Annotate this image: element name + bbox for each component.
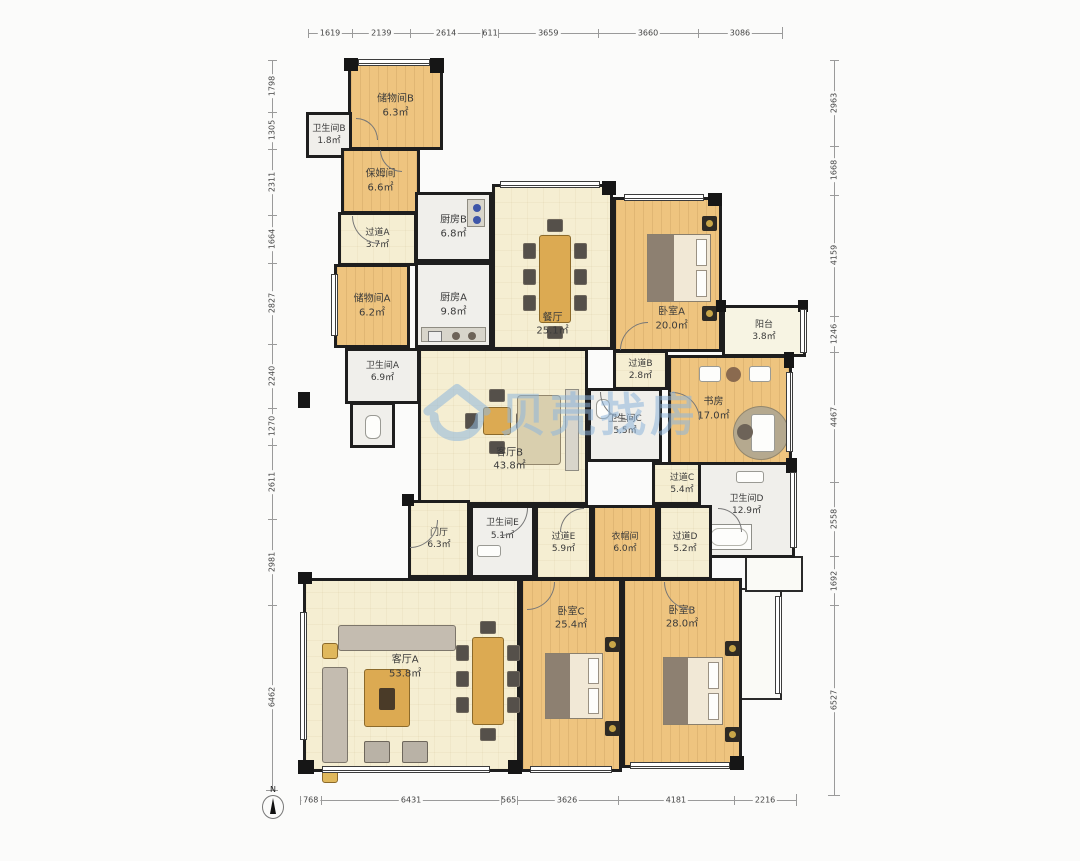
room-kitchen-b: 厨房B6.8㎡ bbox=[415, 192, 492, 262]
wall-pier bbox=[786, 458, 797, 473]
wall-pier bbox=[298, 760, 314, 774]
room-name: 过道E bbox=[552, 531, 576, 541]
wall-pier bbox=[402, 494, 414, 506]
room-name: 保姆间 bbox=[366, 169, 396, 180]
room-name: 卧室A bbox=[658, 307, 685, 318]
room-name: 卫生间A bbox=[366, 361, 399, 371]
wall-pier bbox=[298, 572, 312, 584]
room-name: 厨房B bbox=[440, 215, 467, 226]
nightstand bbox=[702, 306, 717, 321]
chair bbox=[480, 621, 496, 634]
window bbox=[624, 194, 704, 201]
room-cloakroom: 衣帽间6.0㎡ bbox=[592, 505, 658, 580]
bay-window-bath-d bbox=[745, 556, 803, 592]
room-area: 6.0㎡ bbox=[613, 544, 636, 554]
dimension-line-bottom: 768 6431 565 3626 4181 2216 bbox=[300, 794, 797, 806]
dim-value: 1305 bbox=[268, 118, 277, 142]
dim-value: 1692 bbox=[830, 568, 839, 592]
sofa bbox=[322, 667, 348, 763]
chair bbox=[456, 697, 469, 713]
wall-pier bbox=[430, 58, 444, 73]
shelf bbox=[699, 366, 721, 382]
room-bath-a: 卫生间A6.9㎡ bbox=[345, 348, 420, 404]
dim-value: 1246 bbox=[830, 321, 839, 345]
dim-value: 1619 bbox=[318, 29, 342, 38]
room-name: 过道C bbox=[670, 472, 694, 482]
room-area: 6.9㎡ bbox=[371, 373, 394, 383]
window bbox=[331, 274, 338, 336]
wall-pier bbox=[716, 300, 726, 312]
dim-value: 3626 bbox=[555, 796, 579, 805]
room-name: 卫生间D bbox=[730, 493, 764, 503]
shelf bbox=[749, 366, 771, 382]
wall-pier bbox=[708, 193, 722, 206]
sofa bbox=[338, 625, 456, 651]
room-bath-a-nook bbox=[350, 402, 395, 448]
dim-value: 565 bbox=[499, 796, 518, 805]
dim-value: 3659 bbox=[536, 29, 560, 38]
room-name: 衣帽间 bbox=[611, 531, 638, 541]
window bbox=[358, 59, 430, 66]
window bbox=[630, 762, 730, 769]
room-name: 卧室C bbox=[558, 606, 585, 617]
compass-arrow-icon bbox=[262, 795, 284, 819]
window bbox=[790, 472, 797, 548]
nightstand bbox=[725, 641, 740, 656]
room-bath-d: 卫生间D12.9㎡ bbox=[698, 462, 795, 558]
nightstand bbox=[605, 721, 620, 736]
dim-value: 3086 bbox=[728, 29, 752, 38]
north-label: N bbox=[260, 786, 286, 794]
room-living-b: 客厅B43.8㎡ bbox=[418, 348, 588, 505]
tea-table bbox=[483, 407, 511, 435]
room-area: 6.2㎡ bbox=[359, 307, 385, 318]
room-name: 餐厅 bbox=[542, 312, 562, 323]
chair bbox=[456, 671, 469, 687]
room-name: 客厅A bbox=[392, 655, 419, 666]
nightstand bbox=[702, 216, 717, 231]
stove-icon bbox=[467, 199, 485, 227]
room-area: 5.4㎡ bbox=[670, 485, 693, 495]
dim-value: 4181 bbox=[664, 796, 688, 805]
chair bbox=[489, 389, 505, 402]
chair bbox=[574, 243, 587, 259]
window bbox=[775, 596, 782, 694]
room-area: 53.8㎡ bbox=[389, 668, 421, 679]
room-area: 6.8㎡ bbox=[441, 228, 467, 239]
kitchen-counter bbox=[421, 327, 486, 342]
window bbox=[500, 181, 600, 188]
dim-value: 2216 bbox=[753, 796, 777, 805]
side-table bbox=[322, 643, 338, 659]
dim-value: 2558 bbox=[830, 507, 839, 531]
chair bbox=[480, 728, 496, 741]
dim-value: 6527 bbox=[830, 688, 839, 712]
room-area: 25.4㎡ bbox=[555, 620, 587, 631]
wall-pier bbox=[784, 352, 794, 368]
room-area: 28.0㎡ bbox=[666, 619, 698, 630]
room-name: 过道D bbox=[673, 531, 698, 541]
armchair bbox=[364, 741, 390, 763]
wall-pier bbox=[508, 760, 522, 774]
sink-icon bbox=[477, 545, 501, 557]
room-area: 43.8㎡ bbox=[493, 461, 525, 472]
sink-icon bbox=[736, 471, 764, 483]
dim-value: 611 bbox=[480, 29, 499, 38]
room-name: 厨房A bbox=[440, 293, 467, 304]
window bbox=[300, 612, 307, 740]
room-area: 17.0㎡ bbox=[697, 410, 729, 421]
dim-value: 3660 bbox=[636, 29, 660, 38]
dining-table bbox=[539, 235, 571, 323]
nightstand bbox=[725, 727, 740, 742]
wall-pier bbox=[298, 392, 310, 408]
dim-value: 2139 bbox=[369, 29, 393, 38]
toilet-icon bbox=[365, 415, 381, 439]
bed bbox=[663, 657, 723, 725]
dim-value: 2963 bbox=[830, 91, 839, 115]
armchair bbox=[402, 741, 428, 763]
room-area: 6.6㎡ bbox=[368, 182, 394, 193]
chair bbox=[523, 295, 536, 311]
room-area: 6.3㎡ bbox=[383, 107, 409, 118]
chair bbox=[456, 645, 469, 661]
dim-value: 768 bbox=[301, 796, 320, 805]
window bbox=[322, 766, 490, 773]
wall-pier bbox=[344, 58, 358, 71]
dim-value: 4159 bbox=[830, 243, 839, 267]
dim-value: 2240 bbox=[268, 364, 277, 388]
dim-value: 1798 bbox=[268, 74, 277, 98]
room-area: 2.8㎡ bbox=[629, 371, 652, 381]
corridor-b: 过道B2.8㎡ bbox=[613, 350, 668, 390]
plant-icon bbox=[726, 367, 741, 382]
chair bbox=[547, 219, 563, 232]
room-name: 客厅B bbox=[496, 447, 523, 458]
wall-pier bbox=[602, 181, 616, 195]
room-name: 储物间B bbox=[377, 94, 414, 105]
room-kitchen-a: 厨房A9.8㎡ bbox=[415, 262, 492, 348]
room-balcony: 阳台3.8㎡ bbox=[722, 305, 806, 357]
room-area: 1.8㎡ bbox=[317, 136, 340, 146]
corridor-d: 过道D5.2㎡ bbox=[658, 505, 712, 580]
dim-value: 1668 bbox=[830, 158, 839, 182]
dim-value: 2981 bbox=[268, 550, 277, 574]
room-area: 5.2㎡ bbox=[673, 544, 696, 554]
room-area: 3.8㎡ bbox=[752, 332, 775, 342]
window bbox=[530, 766, 612, 773]
room-dining: 餐厅25.1㎡ bbox=[492, 184, 613, 350]
dim-value: 6462 bbox=[268, 685, 277, 709]
dim-value: 2311 bbox=[268, 170, 277, 194]
bed bbox=[545, 653, 603, 719]
dim-value: 1270 bbox=[268, 414, 277, 438]
floor-plan: 储物间B6.3㎡ 卫生间B1.8㎡ 保姆间6.6㎡ 过道A3.7㎡ 储物间A6.… bbox=[0, 0, 1080, 861]
chair bbox=[523, 243, 536, 259]
room-name: 卫生间B bbox=[312, 124, 345, 134]
room-area: 5.5㎡ bbox=[613, 426, 636, 436]
room-area: 9.8㎡ bbox=[441, 306, 467, 317]
chair bbox=[574, 269, 587, 285]
room-name: 阳台 bbox=[755, 320, 773, 330]
chair bbox=[507, 645, 520, 661]
room-name: 过道B bbox=[628, 359, 652, 369]
dim-value: 4467 bbox=[830, 405, 839, 429]
dim-value: 2827 bbox=[268, 291, 277, 315]
dining-table-2 bbox=[472, 637, 504, 725]
bed bbox=[647, 234, 711, 302]
room-area: 12.9㎡ bbox=[732, 506, 761, 516]
room-area: 5.9㎡ bbox=[552, 544, 575, 554]
chair bbox=[574, 295, 587, 311]
dim-value: 2614 bbox=[434, 29, 458, 38]
room-storage-a: 储物间A6.2㎡ bbox=[334, 264, 410, 348]
room-area: 25.1㎡ bbox=[536, 326, 568, 337]
room-area: 6.3㎡ bbox=[427, 540, 450, 550]
dim-value: 6431 bbox=[399, 796, 423, 805]
wall-pier bbox=[730, 756, 744, 770]
window bbox=[800, 309, 807, 353]
dimension-line-top: 1619 2139 2614 611 3659 3660 3086 bbox=[308, 27, 783, 39]
desk bbox=[751, 414, 775, 452]
room-name: 书房 bbox=[703, 397, 723, 408]
desk-chair bbox=[737, 424, 753, 440]
north-indicator: N bbox=[260, 786, 286, 819]
nightstand bbox=[605, 637, 620, 652]
dim-value: 2611 bbox=[268, 470, 277, 494]
chair bbox=[465, 413, 478, 429]
chair bbox=[507, 671, 520, 687]
tv-console bbox=[565, 389, 579, 471]
window bbox=[786, 372, 793, 452]
chair bbox=[523, 269, 536, 285]
room-name: 储物间A bbox=[354, 294, 391, 305]
dimension-line-right: 2963 1668 4159 1246 4467 2558 1692 6527 bbox=[828, 60, 840, 796]
room-living-a: 客厅A53.8㎡ bbox=[303, 578, 520, 772]
room-area: 20.0㎡ bbox=[655, 320, 687, 331]
dim-value: 1664 bbox=[268, 227, 277, 251]
chair bbox=[507, 697, 520, 713]
dimension-line-left: 1798 1305 2311 1664 2827 2240 1270 2611 … bbox=[266, 60, 278, 791]
